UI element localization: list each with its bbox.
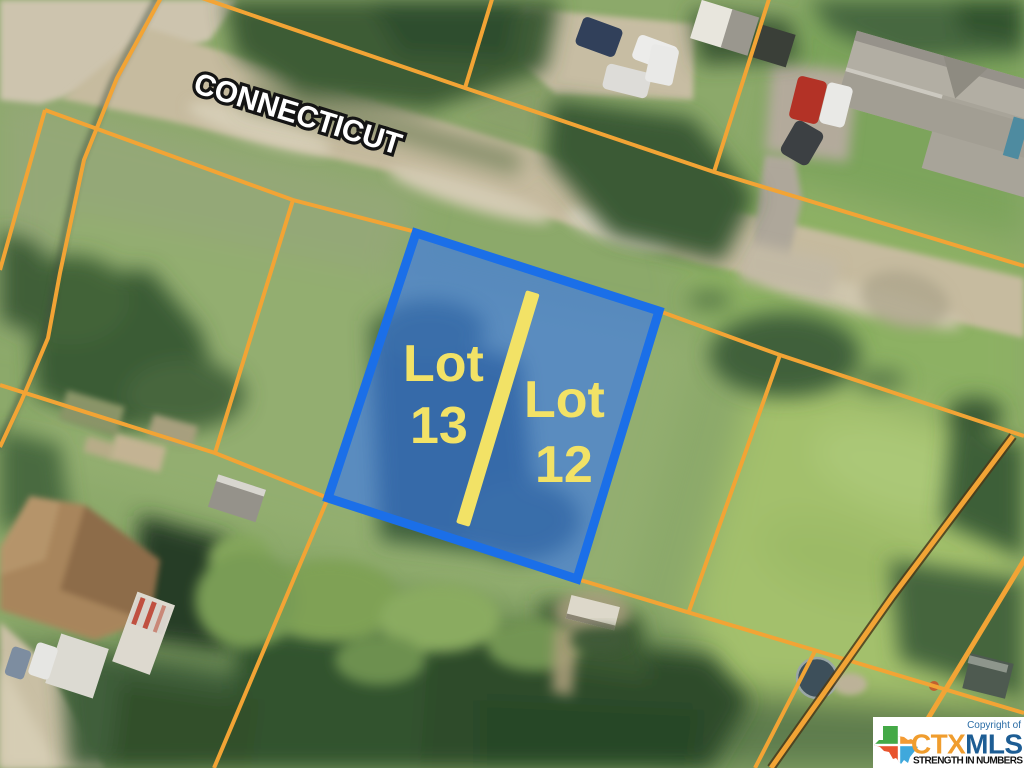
svg-text:12: 12 [535, 436, 593, 494]
svg-text:13: 13 [410, 397, 468, 455]
svg-text:Lot: Lot [403, 335, 484, 393]
svg-text:Lot: Lot [524, 371, 605, 429]
svg-text:STRENGTH IN NUMBERS: STRENGTH IN NUMBERS [913, 756, 1023, 767]
